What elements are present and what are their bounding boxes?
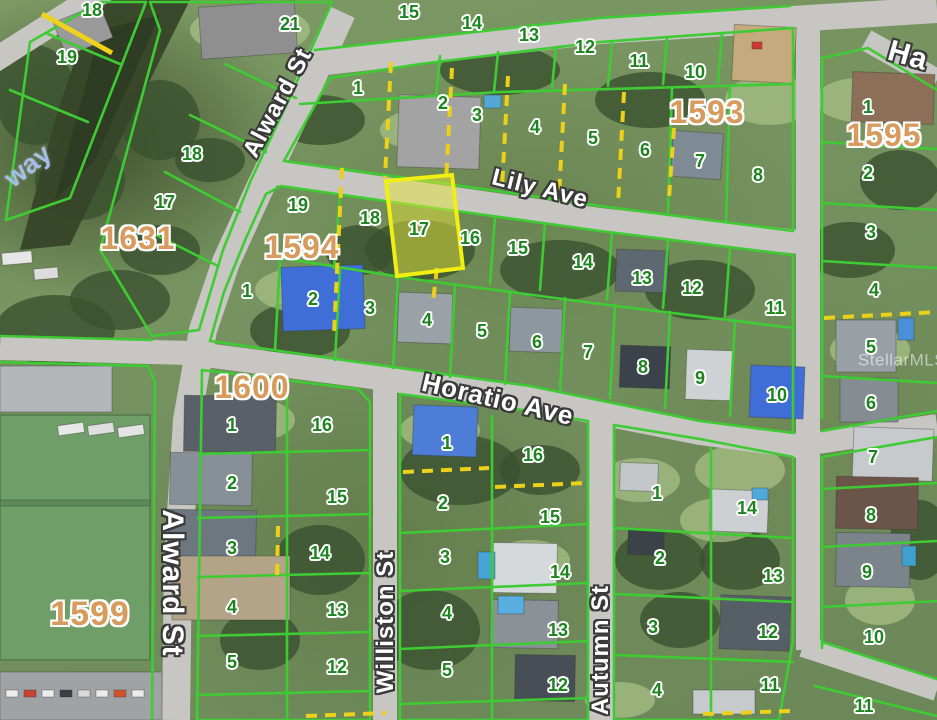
map-graphics-layer [0, 0, 937, 720]
road-top [308, 10, 937, 64]
highlighted-parcel[interactable] [386, 175, 463, 276]
map-canvas[interactable]: Alward StAlward StLily AveHoratio AveWil… [0, 0, 937, 720]
road-bottom-right [803, 646, 937, 690]
